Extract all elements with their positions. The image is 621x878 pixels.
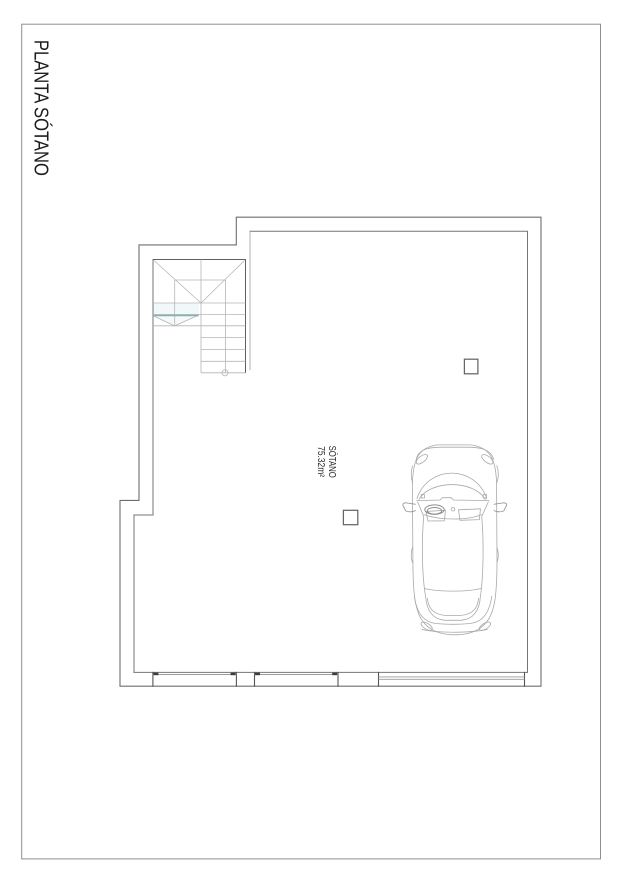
svg-text:PLANTA SÓTANO: PLANTA SÓTANO <box>30 40 53 176</box>
svg-text:SÓTANO: SÓTANO <box>326 446 337 479</box>
svg-text:75.32m²: 75.32m² <box>315 446 326 477</box>
